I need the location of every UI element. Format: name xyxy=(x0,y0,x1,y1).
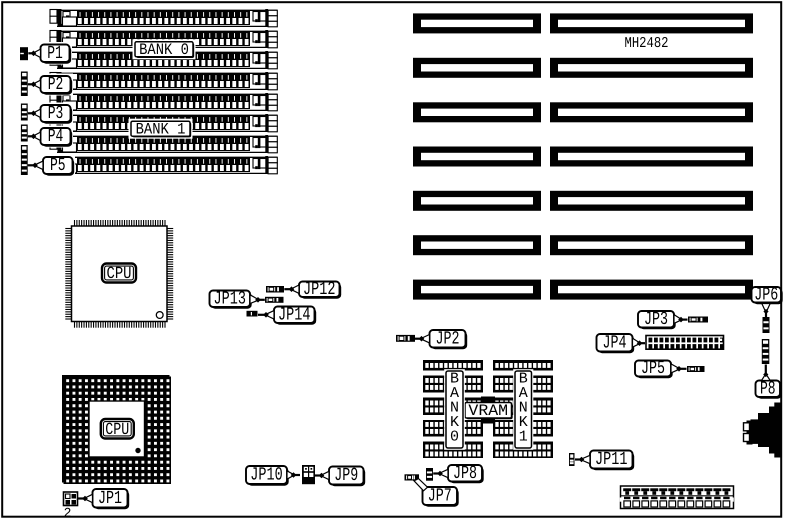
svg-text:1: 1 xyxy=(519,428,528,445)
svg-text:P8: P8 xyxy=(760,378,776,399)
svg-text:P2: P2 xyxy=(48,74,64,95)
svg-text:0: 0 xyxy=(450,428,459,445)
svg-text:JP10: JP10 xyxy=(250,465,282,486)
svg-text:VRAM: VRAM xyxy=(468,402,508,420)
svg-text:JP13: JP13 xyxy=(214,288,246,309)
svg-text:2: 2 xyxy=(64,506,72,521)
svg-text:JP11: JP11 xyxy=(595,449,627,470)
svg-text:JP6: JP6 xyxy=(754,284,778,305)
svg-text:P3: P3 xyxy=(48,103,64,124)
svg-text:JP8: JP8 xyxy=(453,463,477,484)
svg-text:JP5: JP5 xyxy=(641,358,665,379)
svg-text:JP9: JP9 xyxy=(334,465,358,486)
svg-text:JP7: JP7 xyxy=(428,486,452,507)
svg-text:P4: P4 xyxy=(48,126,64,147)
svg-text:CPU: CPU xyxy=(105,421,129,440)
svg-text:JP3: JP3 xyxy=(644,309,668,330)
svg-text:JP1: JP1 xyxy=(98,488,122,509)
svg-text:P5: P5 xyxy=(50,155,66,176)
svg-text:BANK 0: BANK 0 xyxy=(139,41,189,59)
svg-text:CPU: CPU xyxy=(107,265,132,284)
svg-text:JP4: JP4 xyxy=(603,332,627,353)
svg-text:MH2482: MH2482 xyxy=(625,35,669,52)
svg-text:JP12: JP12 xyxy=(303,279,335,300)
svg-text:JP14: JP14 xyxy=(278,304,310,325)
svg-text:JP2: JP2 xyxy=(436,328,460,349)
svg-text:BANK 1: BANK 1 xyxy=(136,120,186,138)
svg-text:P1: P1 xyxy=(47,43,63,64)
